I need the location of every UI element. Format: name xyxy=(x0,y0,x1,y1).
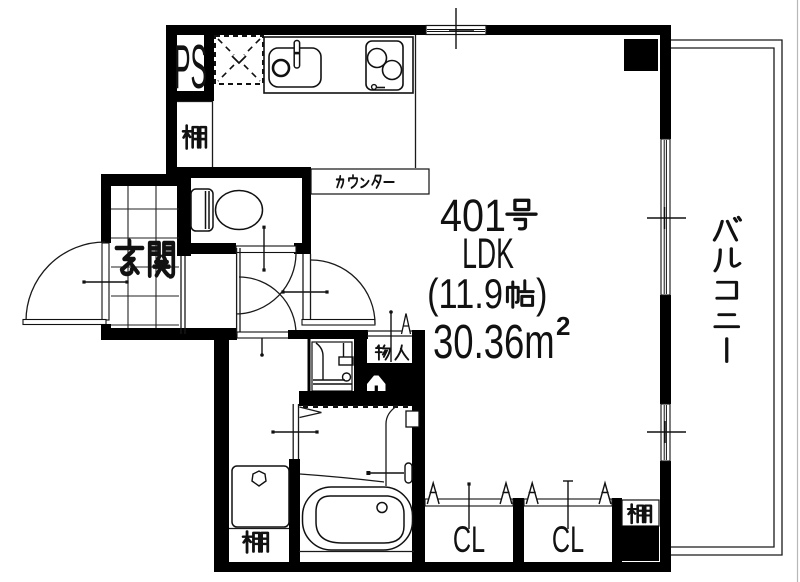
svg-text:2: 2 xyxy=(556,311,570,341)
svg-text:): ) xyxy=(536,271,547,318)
svg-text:CL: CL xyxy=(453,518,485,560)
svg-text:(11.9: (11.9 xyxy=(427,271,503,318)
svg-text:30.36m: 30.36m xyxy=(433,315,555,369)
svg-text:CL: CL xyxy=(552,518,584,560)
svg-text:PS: PS xyxy=(174,33,207,103)
